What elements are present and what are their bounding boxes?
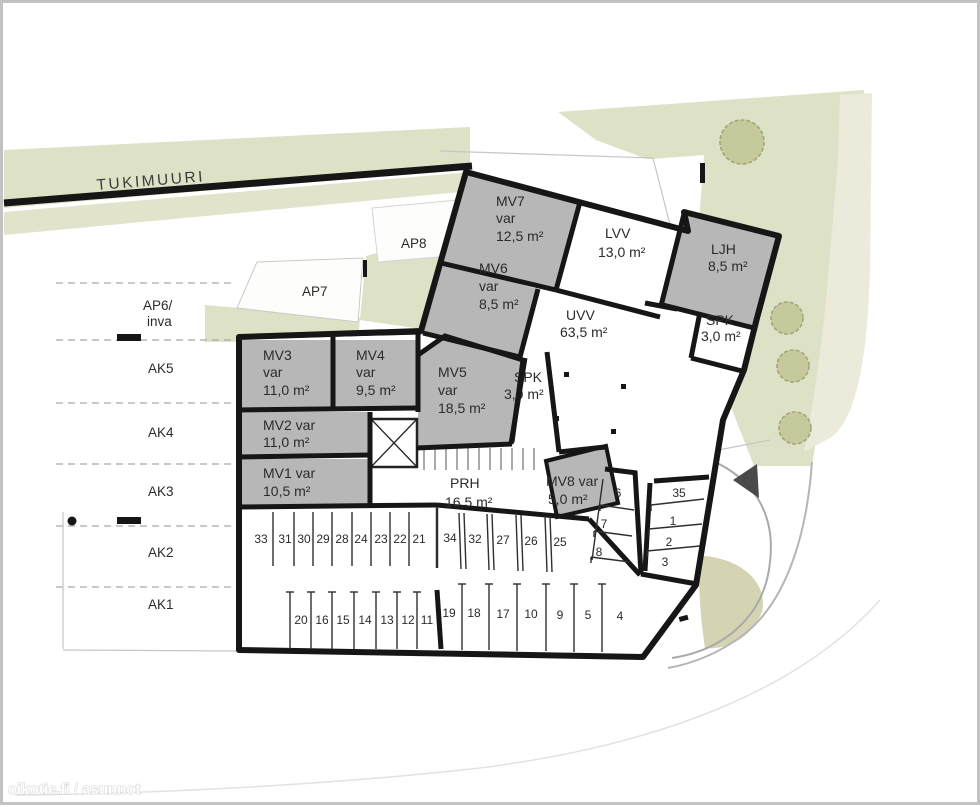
room-type: var (438, 382, 458, 398)
parking-spot: 7 (601, 517, 608, 531)
parking-spot: 2 (666, 535, 673, 549)
room-name: MV5 (438, 364, 467, 380)
stall-ak4: AK4 (148, 425, 174, 440)
room-name: MV1 var (263, 465, 315, 481)
outdoor-edge-bottom (63, 650, 238, 651)
room-name: PRH (450, 475, 480, 491)
parking-spot: 16 (315, 613, 329, 627)
parking-spot: 6 (615, 486, 622, 500)
stall-ap6-line2: inva (147, 314, 172, 329)
parking-spot: 28 (335, 532, 349, 546)
wall-stub-ap7 (363, 260, 367, 277)
parking-spot: 31 (278, 532, 292, 546)
tree-icon (777, 350, 809, 382)
room-name: MV4 (356, 347, 385, 363)
room-name: MV8 var (546, 473, 598, 489)
stall-ap8: AP8 (401, 236, 427, 251)
room-name: UVV (566, 307, 595, 323)
stall-ak2: AK2 (148, 545, 174, 560)
column-dot-left (68, 517, 77, 526)
room-area: 11,0 m² (263, 382, 310, 398)
parking-spot: 32 (468, 532, 482, 546)
parking-spot: 18 (467, 606, 481, 620)
parking-spot: 10 (524, 607, 538, 621)
room-area: 63,5 m² (560, 324, 608, 340)
parking-spot: 11 (421, 613, 434, 627)
stall-ak5: AK5 (148, 361, 174, 376)
room-name: LJH (711, 241, 736, 257)
parking-spot: 25 (553, 535, 567, 549)
stall-ak3: AK3 (148, 484, 174, 499)
parking-spot: 19 (442, 606, 456, 620)
floor-plan-canvas: TUKIMUURI MV7 var 12,5 m² LVV 13,0 m² LJ… (0, 0, 980, 807)
stall-ak1: AK1 (148, 597, 174, 612)
parking-spot: 21 (412, 532, 426, 546)
stall-ap6-line1: AP6/ (143, 298, 173, 313)
tree-icon (771, 302, 803, 334)
tree-icon (720, 120, 764, 164)
tree-icon (779, 412, 811, 444)
room-area: 8,5 m² (479, 296, 519, 312)
room-name: LVV (605, 225, 631, 241)
parking-spot: 33 (254, 532, 268, 546)
room-area: 5,0 m² (548, 491, 588, 507)
room-area: 13,0 m² (598, 244, 646, 260)
room-area: 9,5 m² (356, 382, 396, 398)
room-area: 10,5 m² (263, 483, 311, 499)
parking-spot: 17 (496, 607, 510, 621)
room-name: MV2 var (263, 417, 315, 433)
driveway-arrow-icon (733, 464, 759, 498)
room-name: MV6 (479, 260, 508, 276)
parking-spot: 15 (336, 613, 350, 627)
room-area: 3,0 m² (701, 328, 741, 344)
wall-stub-left-1 (117, 334, 141, 341)
room-name: MV7 (496, 193, 525, 209)
wall-stub-corner (679, 615, 689, 622)
room-area: 3,0 m² (504, 386, 544, 402)
parking-spot: 35 (672, 486, 686, 500)
room-name: MV3 (263, 347, 292, 363)
watermark: oikotie.fi / asunnot (8, 781, 141, 798)
stall-ap7: AP7 (302, 284, 328, 299)
parking-spot: 5 (585, 608, 592, 622)
room-area: 16,5 m² (445, 494, 493, 510)
parking-spot: 23 (374, 532, 388, 546)
parking-spot: 29 (316, 532, 330, 546)
parking-numbers-upper-left: 33 31 30 29 28 24 23 22 21 (254, 532, 426, 546)
wall-stub-canopy (700, 163, 705, 183)
parking-spot: 26 (524, 534, 538, 548)
room-type: var (263, 364, 283, 380)
parking-spot: 4 (617, 609, 624, 623)
room-area: 12,5 m² (496, 228, 544, 244)
room-area: 18,5 m² (438, 400, 486, 416)
parking-spot: 1 (670, 514, 677, 528)
parking-spot: 3 (662, 555, 669, 569)
room-area: 8,5 m² (708, 258, 748, 274)
wall-stub-left-2 (117, 517, 141, 524)
parking-spot: 20 (294, 613, 308, 627)
parking-spot: 13 (380, 613, 394, 627)
room-type: var (496, 210, 516, 226)
room-name: SPK (706, 312, 735, 328)
parking-spot: 12 (401, 613, 415, 627)
parking-spot: 14 (358, 613, 372, 627)
room-label-mv2: MV2 var 11,0 m² (263, 417, 315, 450)
room-type: var (356, 364, 376, 380)
parking-spot: 24 (354, 532, 368, 546)
parking-spot: 22 (393, 532, 407, 546)
room-name: SPK (514, 369, 543, 385)
parking-spot: 8 (596, 545, 603, 559)
room-area: 11,0 m² (263, 434, 310, 450)
parking-spot: 30 (297, 532, 311, 546)
parking-spot: 27 (496, 533, 510, 547)
parking-spot: 34 (443, 531, 457, 545)
parking-spot: 9 (557, 608, 564, 622)
room-type: var (479, 278, 499, 294)
parking-numbers-lower-left: 20 16 15 14 13 12 11 (294, 613, 433, 627)
